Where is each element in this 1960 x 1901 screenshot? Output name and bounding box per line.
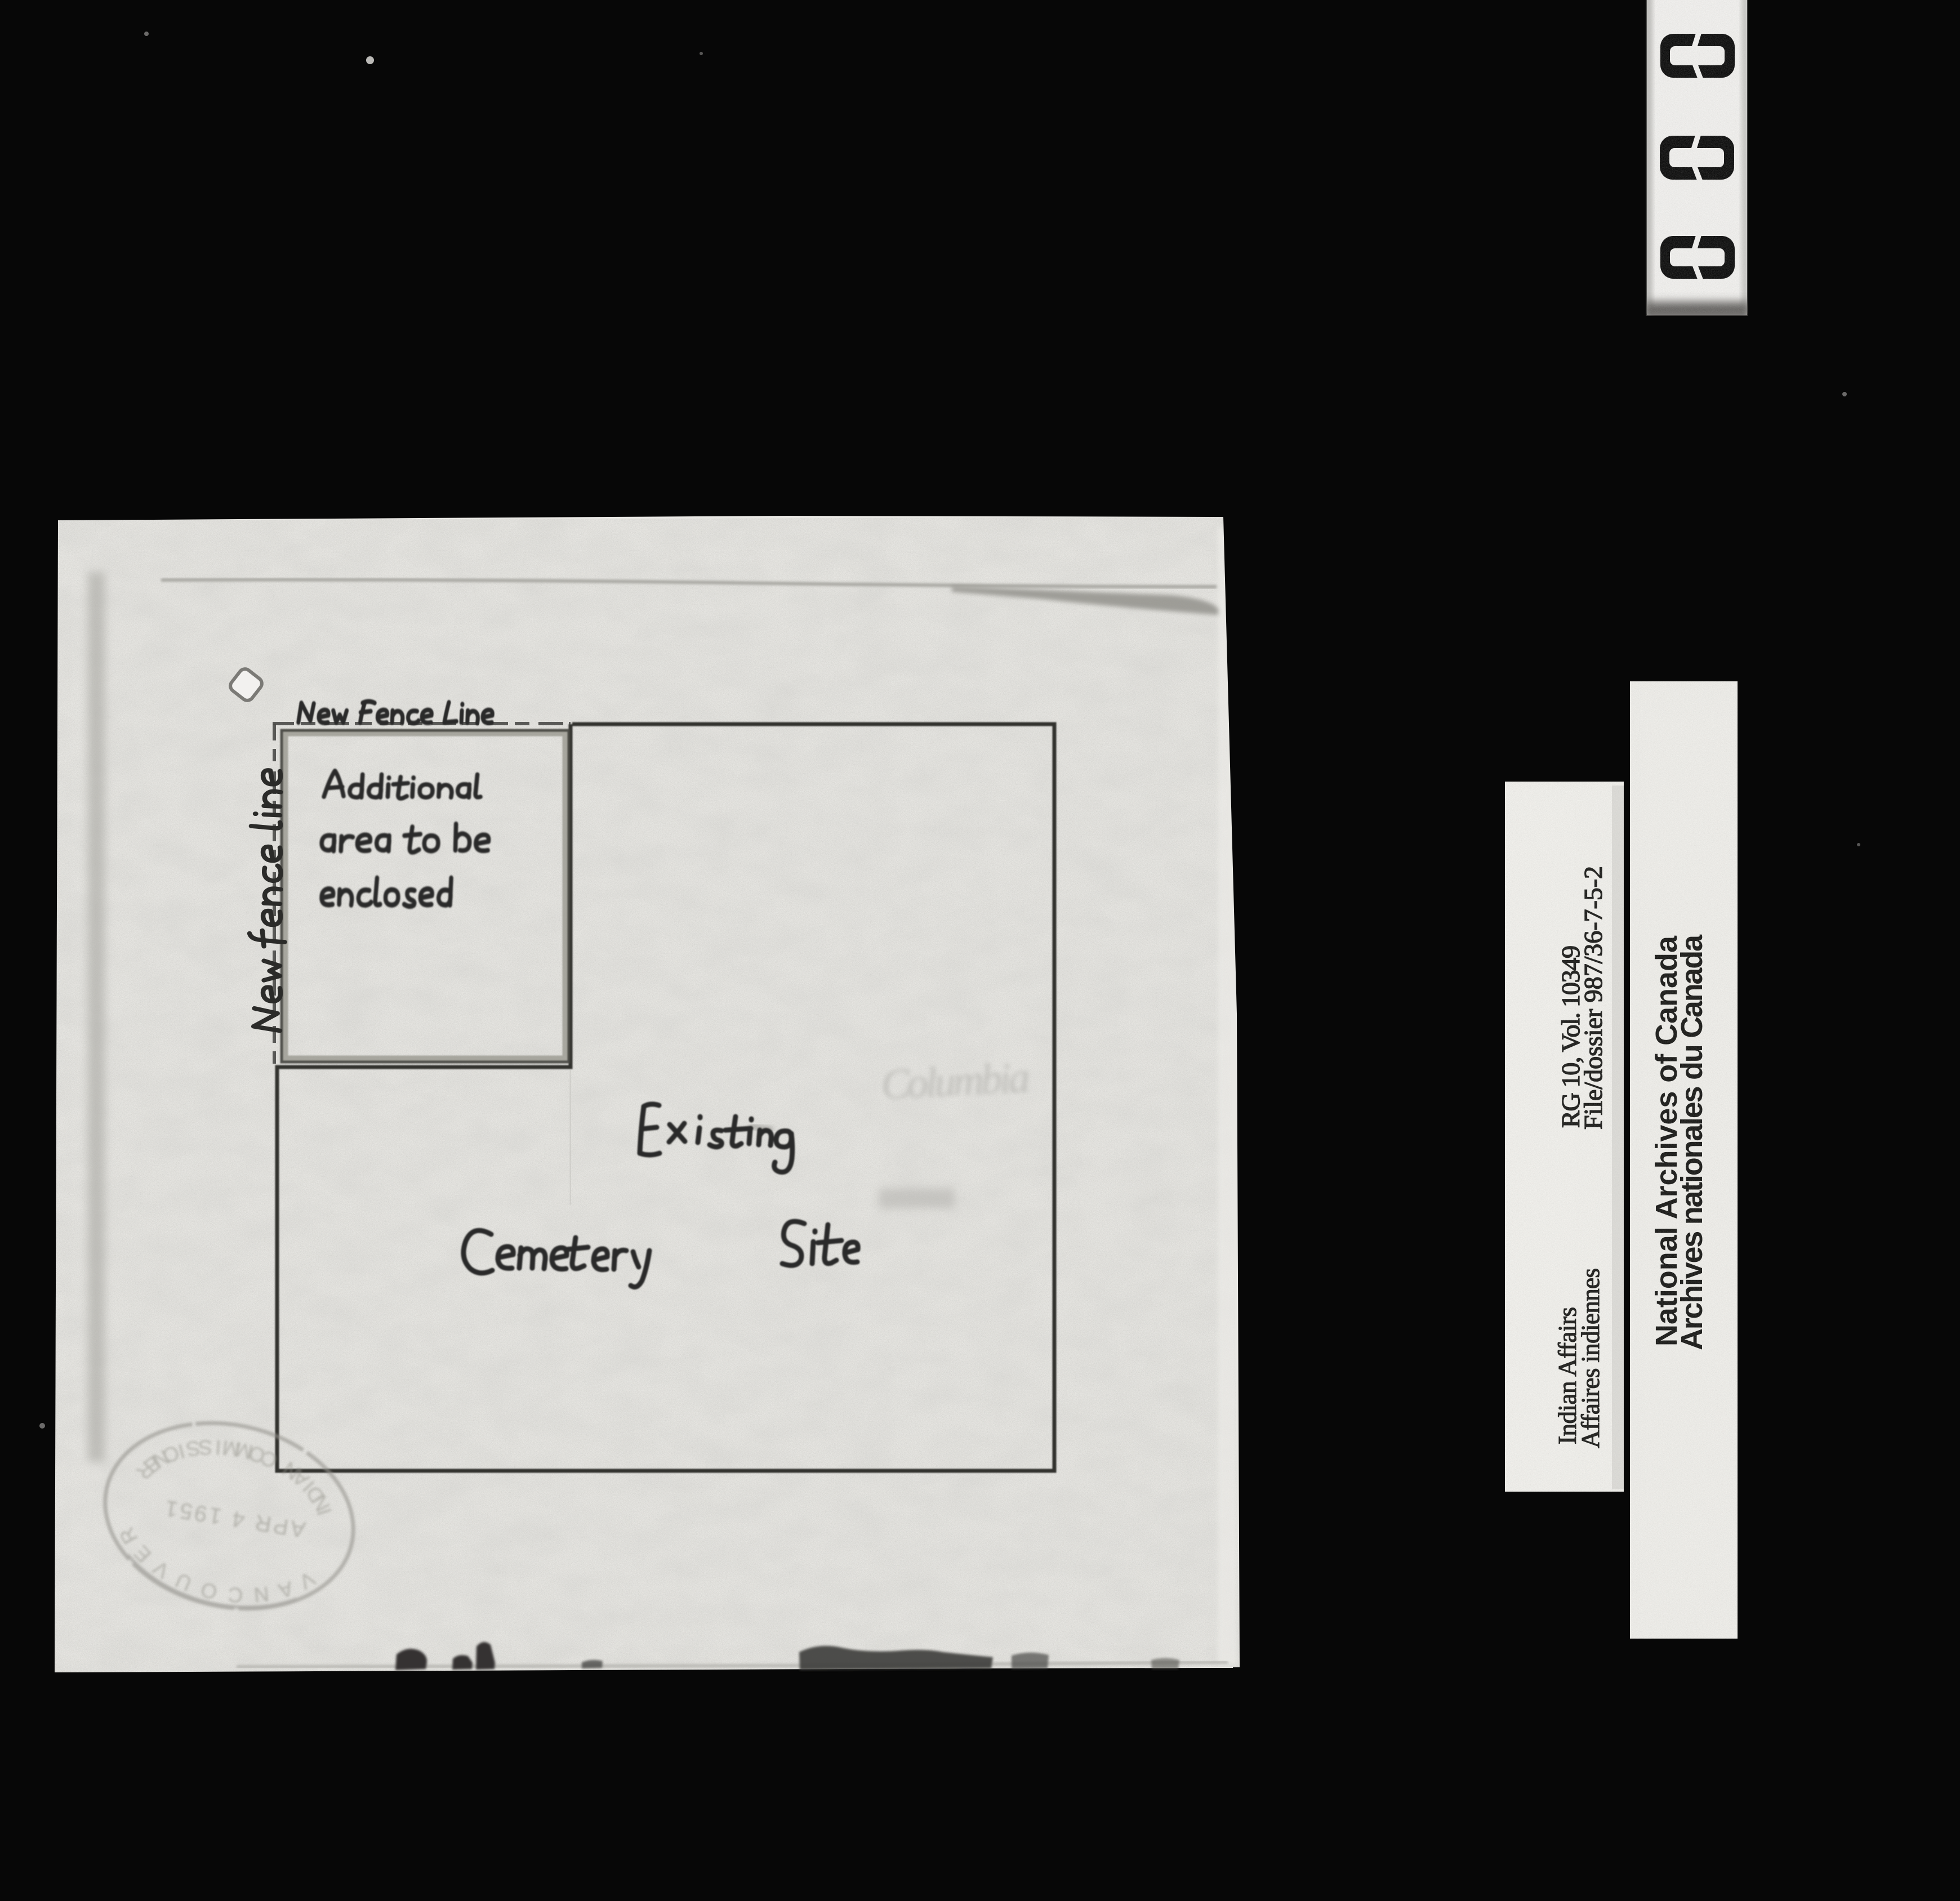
svg-text:I: I xyxy=(215,1436,221,1459)
svg-text:M: M xyxy=(221,1436,241,1461)
svg-text:C: C xyxy=(227,1583,244,1607)
svg-text:Columbia: Columbia xyxy=(880,1054,1031,1109)
svg-text:N: N xyxy=(253,1582,270,1607)
